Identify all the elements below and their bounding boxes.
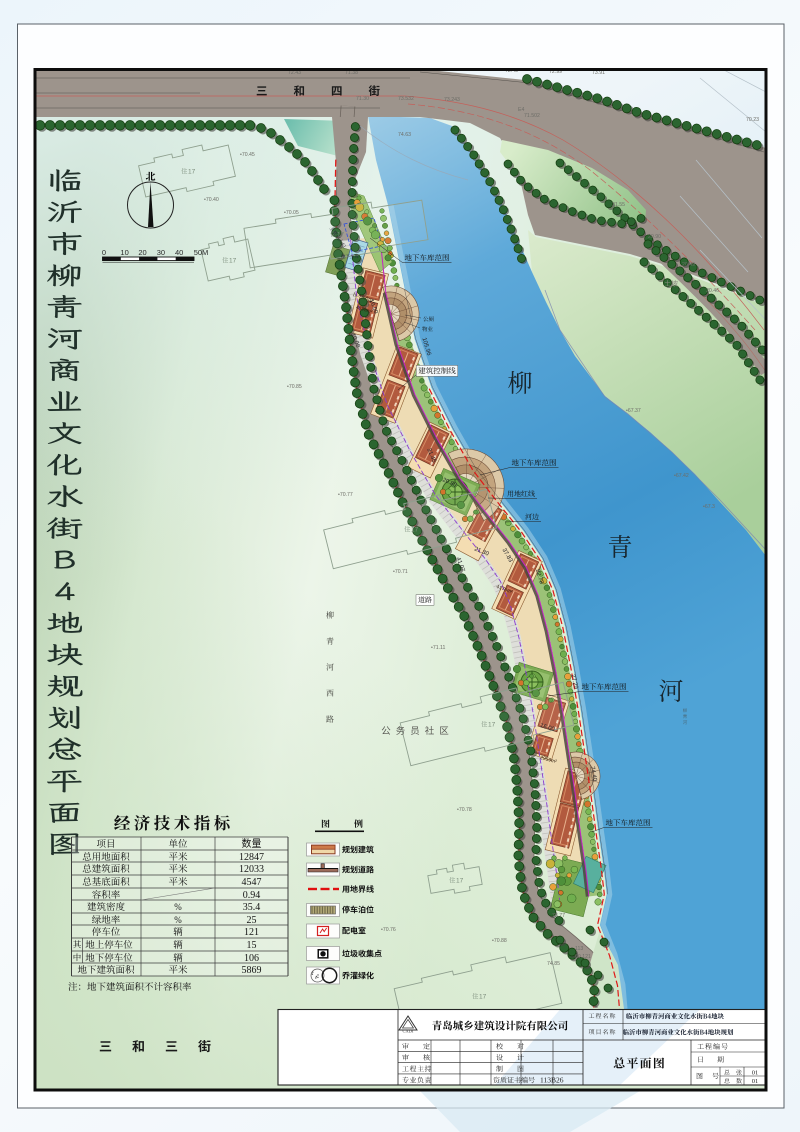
- svg-text:•67.42: •67.42: [674, 473, 689, 479]
- svg-text:17: 17: [456, 878, 464, 885]
- svg-text:0: 0: [102, 248, 106, 257]
- svg-text:17: 17: [479, 994, 487, 1001]
- svg-text:17: 17: [488, 722, 496, 729]
- svg-text:74.85: 74.85: [547, 961, 560, 967]
- svg-text:•70.45: •70.45: [240, 152, 255, 158]
- svg-text:%: %: [174, 915, 182, 925]
- svg-text:35.4: 35.4: [243, 902, 261, 913]
- svg-text:•70.77: •70.77: [338, 492, 353, 498]
- svg-text:10: 10: [120, 248, 128, 257]
- svg-text:20.46: 20.46: [706, 288, 719, 294]
- svg-text:71.502: 71.502: [524, 113, 540, 119]
- svg-text:20: 20: [138, 248, 146, 257]
- svg-text:17: 17: [188, 169, 196, 176]
- svg-text:73.243: 73.243: [444, 97, 460, 103]
- svg-text:CXDI: CXDI: [403, 1029, 415, 1034]
- svg-text:20.49: 20.49: [682, 262, 695, 268]
- svg-text:•70.05: •70.05: [284, 210, 299, 216]
- svg-text:50M: 50M: [194, 248, 209, 257]
- svg-text:30: 30: [157, 248, 165, 257]
- svg-text:•70.88: •70.88: [492, 938, 507, 944]
- svg-text:15: 15: [247, 940, 257, 951]
- svg-text:01: 01: [752, 1078, 759, 1085]
- svg-text:70.23: 70.23: [746, 117, 759, 123]
- svg-text:121: 121: [244, 927, 259, 938]
- svg-text:113B26: 113B26: [540, 1076, 564, 1085]
- svg-text:17: 17: [229, 258, 237, 265]
- svg-text:%: %: [174, 902, 182, 912]
- svg-text:20.90: 20.90: [648, 234, 661, 240]
- svg-text:5869: 5869: [242, 965, 262, 976]
- svg-text:21.55: 21.55: [612, 202, 625, 208]
- svg-text:12847: 12847: [239, 852, 264, 863]
- svg-text:73.532: 73.532: [398, 96, 414, 102]
- svg-text:•70.85: •70.85: [287, 384, 302, 390]
- svg-text:74.63: 74.63: [398, 132, 411, 138]
- svg-text:0.94: 0.94: [243, 890, 261, 901]
- svg-text:•70.76: •70.76: [381, 927, 396, 933]
- svg-text:数量: 数量: [242, 837, 262, 850]
- svg-text:69.121: 69.121: [575, 954, 591, 960]
- svg-text:E4: E4: [518, 107, 524, 113]
- svg-text:•70.40: •70.40: [204, 197, 219, 203]
- svg-text:71.30: 71.30: [356, 96, 369, 102]
- svg-text:•70.78: •70.78: [457, 807, 472, 813]
- svg-text:•67.37: •67.37: [626, 408, 641, 414]
- svg-text:01: 01: [752, 1070, 759, 1077]
- svg-text:113: 113: [575, 946, 583, 952]
- svg-text:17: 17: [411, 527, 419, 534]
- svg-text:•71.11: •71.11: [431, 645, 446, 651]
- svg-text:•67.3: •67.3: [703, 504, 715, 510]
- svg-text:4547: 4547: [242, 877, 262, 888]
- svg-text:73.77: 73.77: [552, 913, 565, 919]
- svg-text:•70.71: •70.71: [393, 569, 408, 575]
- svg-text:40: 40: [175, 248, 183, 257]
- svg-text:25: 25: [247, 915, 257, 926]
- svg-text:106: 106: [244, 953, 259, 964]
- svg-text:12033: 12033: [239, 864, 264, 875]
